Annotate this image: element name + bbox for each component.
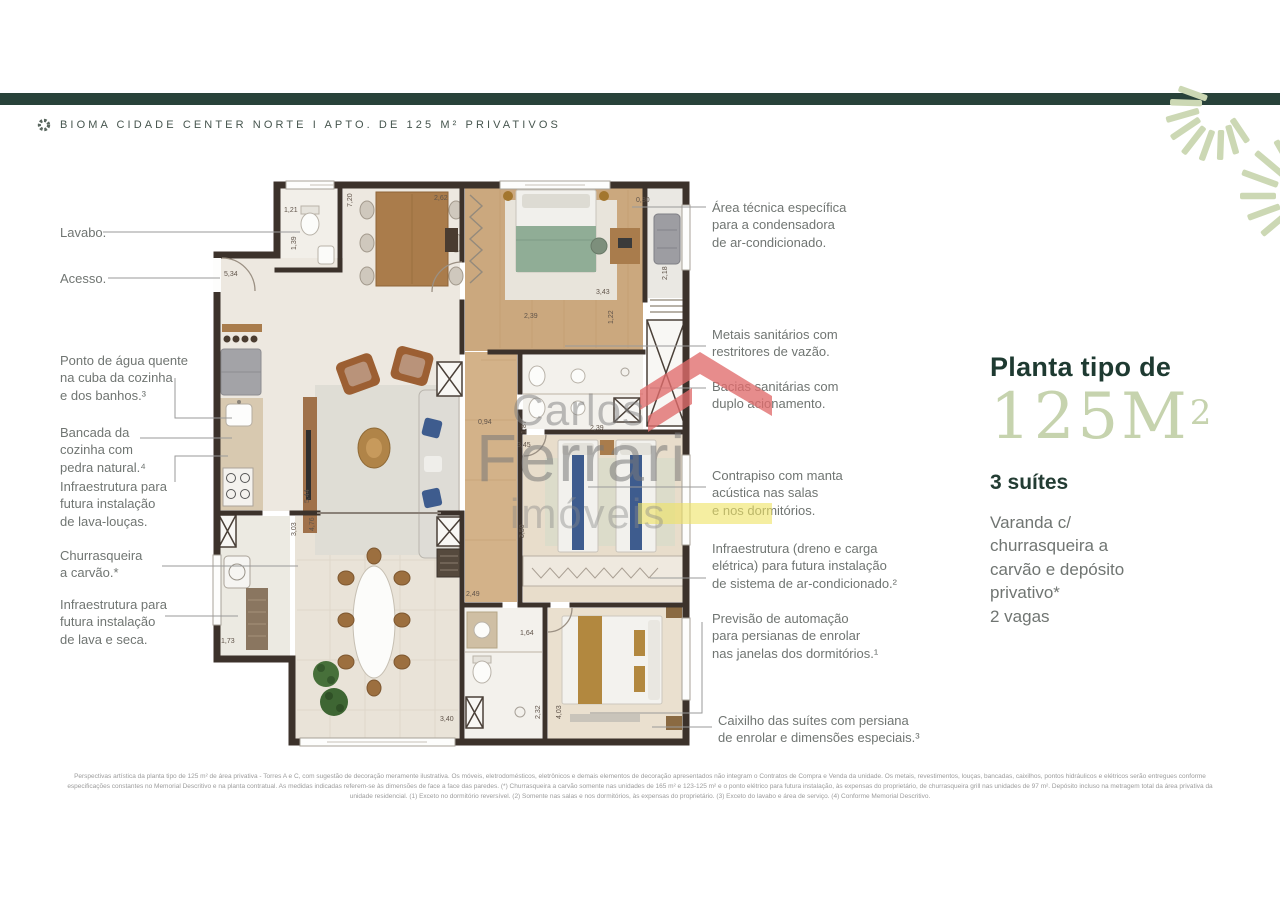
callout-contrapiso: Contrapiso com manta acústica nas salas … bbox=[712, 467, 843, 519]
callout-metais: Metais sanitários com restritores de vaz… bbox=[712, 326, 838, 361]
callout-area-tecnica: Área técnica específica para a condensad… bbox=[712, 199, 846, 251]
dim-label: 2,18 bbox=[662, 266, 669, 280]
callout-caixilho: Caixilho das suítes com persiana de enro… bbox=[718, 712, 920, 747]
dim-label: 1,39 bbox=[291, 236, 298, 250]
callout-lava-loucas: Infraestrutura para futura instalação de… bbox=[60, 478, 167, 530]
panel-suites: 3 suítes bbox=[990, 471, 1240, 495]
dim-label: 2,62 bbox=[434, 195, 448, 202]
panel-kicker: Planta tipo de bbox=[990, 352, 1240, 383]
dim-label: 1,21 bbox=[284, 207, 298, 214]
callout-automacao: Previsão de automação para persianas de … bbox=[712, 610, 878, 662]
callout-lava-seca: Infraestrutura para futura instalação de… bbox=[60, 596, 167, 648]
info-panel: Planta tipo de 125M2 3 suítes Varanda c/… bbox=[990, 352, 1240, 628]
area-sup: 2 bbox=[1190, 393, 1212, 433]
dim-label: 5,34 bbox=[224, 271, 238, 278]
callout-bancada: Bancada da cozinha com pedra natural.⁴ bbox=[60, 424, 146, 476]
beds-twin-suite bbox=[523, 440, 685, 586]
callout-bacias: Bacias sanitárias com duplo acionamento. bbox=[712, 378, 838, 413]
dim-label: 2,32 bbox=[535, 705, 542, 719]
callout-acesso: Acesso. bbox=[60, 270, 106, 287]
dim-label: 0,80 bbox=[636, 197, 650, 204]
dim-label: 3,43 bbox=[596, 289, 610, 296]
dim-label: 0,94 bbox=[478, 419, 492, 426]
panel-area: 125M2 bbox=[990, 385, 1240, 449]
callout-lavabo: Lavabo. bbox=[60, 224, 106, 241]
page: BIOMA CIDADE CENTER NORTE I APTO. DE 125… bbox=[0, 0, 1280, 905]
dim-label: 7,20 bbox=[347, 193, 354, 207]
dim-label: 4,03 bbox=[556, 705, 563, 719]
dim-label: 1,73 bbox=[221, 638, 235, 645]
disclaimer-line-2: especificações constantes no Memorial De… bbox=[55, 782, 1225, 792]
kitchen-fixtures bbox=[219, 324, 263, 510]
dim-label: 2,39 bbox=[590, 425, 604, 432]
dim-label: 2,49 bbox=[466, 591, 480, 598]
callout-agua-quente: Ponto de água quente na cuba da cozinha … bbox=[60, 352, 188, 404]
disclaimer: Perspectivas artística da planta tipo de… bbox=[55, 772, 1225, 801]
dim-label: 3,03 bbox=[291, 522, 298, 536]
dim-label: 1,64 bbox=[520, 630, 534, 637]
dim-label: 3,40 bbox=[440, 716, 454, 723]
panel-features: Varanda c/ churrasqueira a carvão e depó… bbox=[990, 511, 1240, 628]
floor-plan: 1,21 1,39 7,20 2,62 0,80 3,43 2,18 5,34 … bbox=[213, 181, 690, 746]
dim-label: 2,39 bbox=[524, 313, 538, 320]
callout-dreno: Infraestrutura (dreno e carga elétrica) … bbox=[712, 540, 897, 592]
dim-label: 3,45 bbox=[517, 442, 531, 449]
disclaimer-line-1: Perspectivas artística da planta tipo de… bbox=[55, 772, 1225, 782]
dim-label: 1,22 bbox=[608, 310, 615, 324]
charcoal-grill bbox=[437, 549, 461, 577]
dim-label: 1,87 bbox=[521, 420, 528, 434]
leaf-decoration bbox=[1165, 85, 1280, 237]
disclaimer-line-3: unidade residencial. (1) Exceto no dormi… bbox=[55, 792, 1225, 802]
area-value: 125M bbox=[990, 380, 1190, 454]
dim-label: 5,44 bbox=[304, 489, 311, 503]
dim-label: 3,50 bbox=[519, 524, 526, 538]
callout-churrasqueira: Churrasqueira a carvão.* bbox=[60, 547, 142, 582]
dim-label: 4,76 bbox=[309, 517, 316, 531]
